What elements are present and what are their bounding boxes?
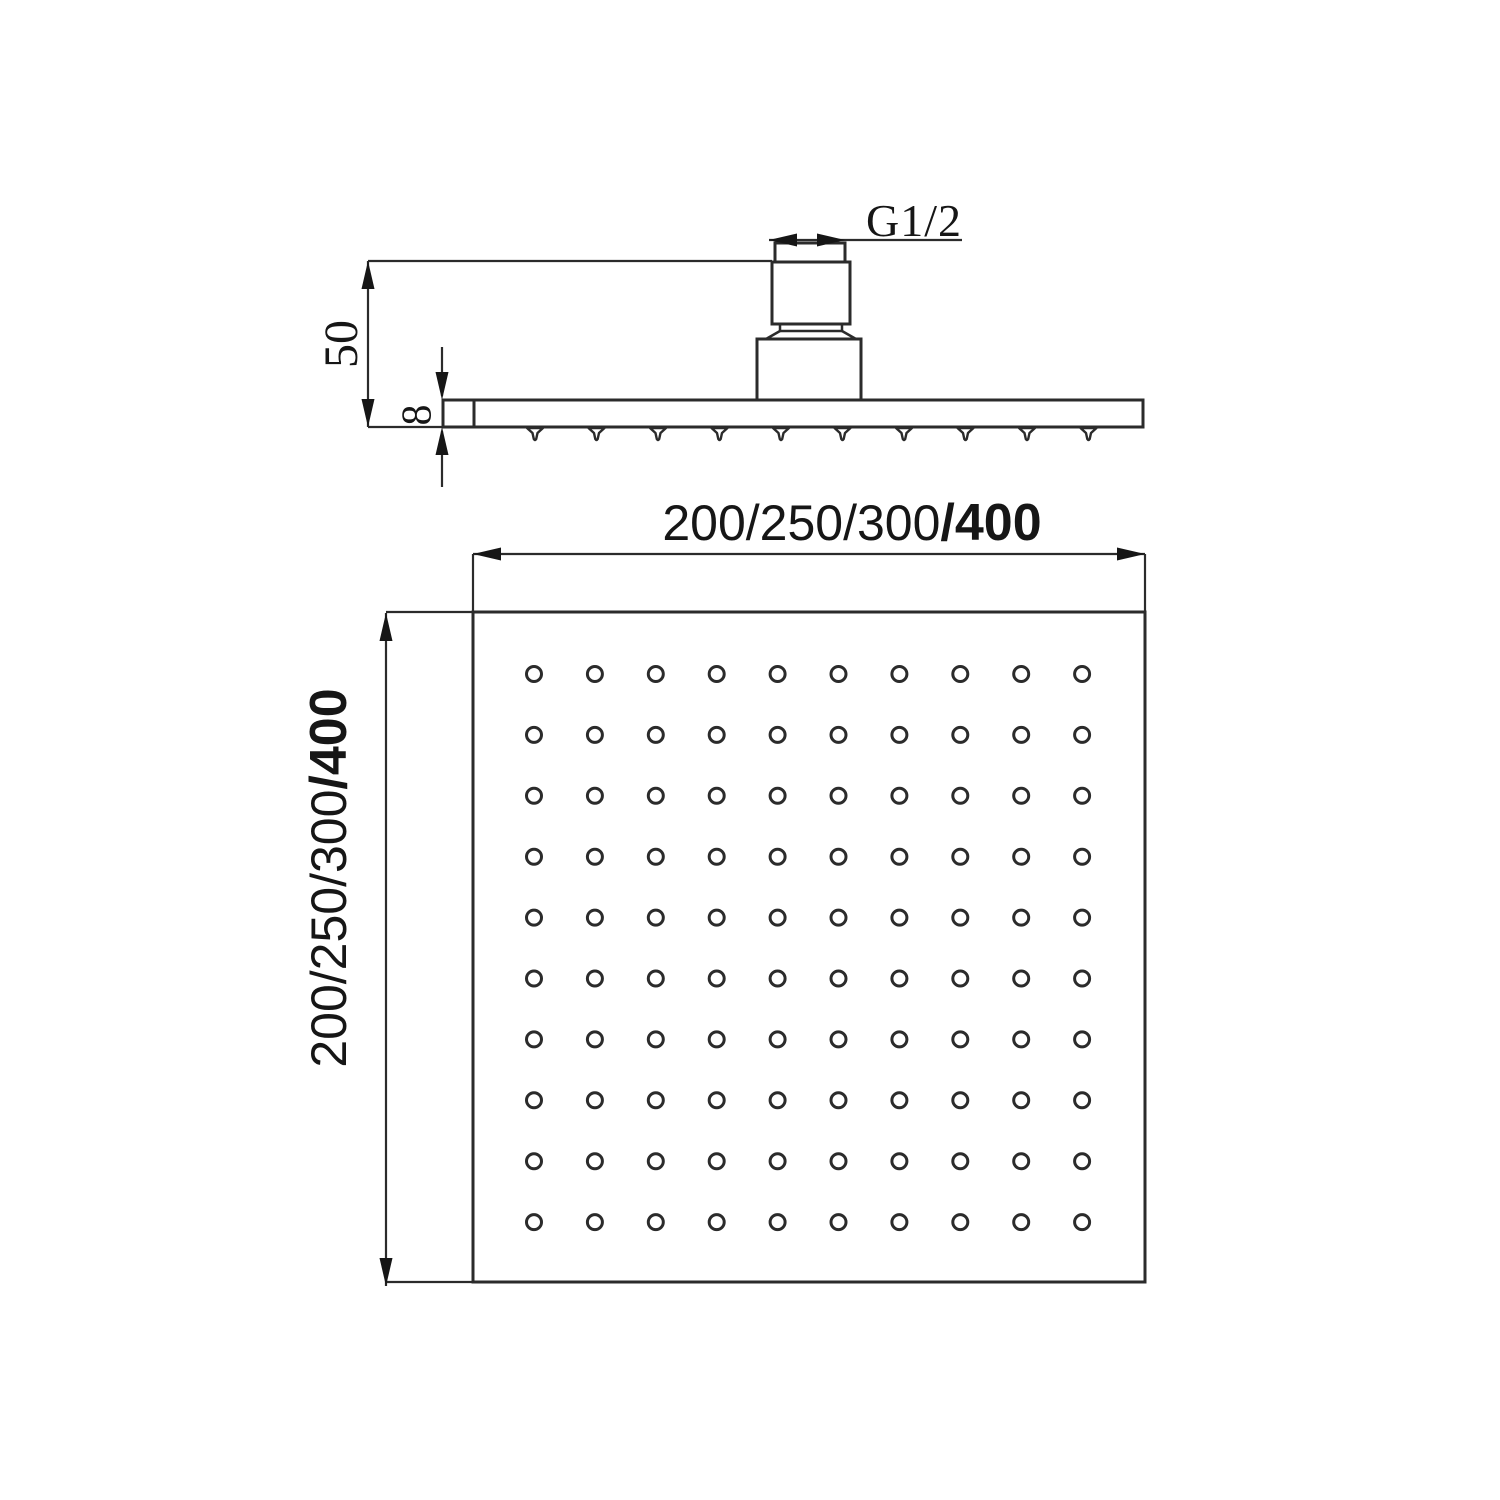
thickness-dim-arrow-up <box>436 427 449 455</box>
spray-hole <box>587 1093 602 1108</box>
nozzle-row <box>527 428 1097 440</box>
nozzle-tip <box>835 428 851 440</box>
plate-side-outline <box>443 400 1143 427</box>
spray-hole <box>953 1032 968 1047</box>
spray-hole <box>1014 849 1029 864</box>
plan-view: 200/250/300/400 200/250/300/400 <box>300 494 1145 1286</box>
spray-hole <box>953 1215 968 1230</box>
spray-hole <box>953 667 968 682</box>
spray-hole <box>648 1093 663 1108</box>
height-dim-arrow-up <box>362 261 375 289</box>
thread-dimension: G1/2 <box>769 195 962 247</box>
nozzle-tip <box>773 428 789 440</box>
spray-hole <box>587 1215 602 1230</box>
nozzle-tip <box>896 428 912 440</box>
connector-collar <box>766 324 856 339</box>
spray-hole <box>892 1154 907 1169</box>
nozzle-tip <box>1081 428 1097 440</box>
spray-hole <box>953 910 968 925</box>
plan-height-dim-arrow-up <box>380 613 393 641</box>
spray-hole <box>709 910 724 925</box>
spray-hole <box>892 971 907 986</box>
spray-hole <box>648 1215 663 1230</box>
plan-height-dim-label-normal: 200/250/300 <box>301 790 357 1068</box>
spray-hole <box>770 1215 785 1230</box>
spray-hole <box>709 849 724 864</box>
spray-hole <box>527 727 542 742</box>
nozzle-tip <box>589 428 605 440</box>
spray-hole <box>953 1093 968 1108</box>
spray-hole <box>770 788 785 803</box>
spray-hole <box>1014 971 1029 986</box>
plan-height-dim-label-bold: /400 <box>300 688 358 789</box>
nozzle-tip <box>958 428 974 440</box>
spray-hole <box>709 788 724 803</box>
spray-hole <box>953 727 968 742</box>
spray-hole <box>587 849 602 864</box>
spray-hole <box>1014 1215 1029 1230</box>
spray-hole <box>953 849 968 864</box>
nozzle-tip <box>527 428 543 440</box>
spray-hole <box>831 1032 846 1047</box>
width-dim-label-bold: /400 <box>940 494 1041 552</box>
spray-hole <box>831 788 846 803</box>
spray-hole <box>892 1032 907 1047</box>
spray-hole <box>953 971 968 986</box>
spray-hole <box>709 1154 724 1169</box>
spray-hole <box>1075 849 1090 864</box>
width-dim-label-normal: 200/250/300 <box>662 495 940 551</box>
spray-hole <box>831 1154 846 1169</box>
width-dim-arrow-right <box>1117 548 1145 561</box>
spray-hole <box>709 667 724 682</box>
spray-hole <box>831 849 846 864</box>
spray-hole <box>1014 667 1029 682</box>
spray-hole <box>1075 1215 1090 1230</box>
spray-hole <box>892 788 907 803</box>
spray-hole <box>892 727 907 742</box>
spray-hole <box>709 1215 724 1230</box>
spray-hole <box>648 1032 663 1047</box>
spray-hole <box>953 788 968 803</box>
spray-hole <box>527 849 542 864</box>
spray-hole <box>770 667 785 682</box>
spray-hole <box>587 910 602 925</box>
spray-hole <box>892 1215 907 1230</box>
thread-size-label: G1/2 <box>866 195 962 246</box>
plan-height-dimension: 200/250/300/400 <box>300 612 473 1286</box>
spray-hole <box>770 849 785 864</box>
spray-hole <box>953 1154 968 1169</box>
spray-hole <box>892 849 907 864</box>
spray-hole <box>709 1093 724 1108</box>
nozzle-tip <box>712 428 728 440</box>
spray-hole <box>831 1093 846 1108</box>
connector-base <box>757 339 861 400</box>
spray-hole <box>587 667 602 682</box>
spray-hole <box>770 1032 785 1047</box>
spray-hole <box>587 788 602 803</box>
spray-hole <box>1014 727 1029 742</box>
spray-hole <box>648 667 663 682</box>
spray-hole <box>648 1154 663 1169</box>
spray-hole <box>1014 1032 1029 1047</box>
spray-hole <box>1014 788 1029 803</box>
spray-hole <box>1075 1093 1090 1108</box>
thickness-dim-arrow-down <box>436 372 449 400</box>
spray-hole <box>770 1154 785 1169</box>
width-dim-label: 200/250/300/400 <box>662 494 1041 552</box>
spray-hole <box>1075 727 1090 742</box>
spray-hole <box>527 788 542 803</box>
plan-height-dim-label: 200/250/300/400 <box>300 688 358 1067</box>
spray-hole <box>527 1093 542 1108</box>
spray-hole <box>770 971 785 986</box>
spray-hole <box>831 910 846 925</box>
spray-hole <box>648 788 663 803</box>
width-dim-arrow-left <box>473 548 501 561</box>
spray-hole <box>1075 667 1090 682</box>
spray-hole <box>770 910 785 925</box>
spray-hole <box>1014 1093 1029 1108</box>
spray-hole <box>831 971 846 986</box>
spray-hole <box>587 727 602 742</box>
spray-hole <box>709 971 724 986</box>
technical-drawing-canvas: G1/2 50 8 <box>0 0 1500 1500</box>
spray-hole <box>648 971 663 986</box>
spray-hole <box>1075 1154 1090 1169</box>
connector-body <box>772 262 850 324</box>
connector-thread <box>775 243 845 262</box>
spray-hole <box>1075 788 1090 803</box>
width-dimension: 200/250/300/400 <box>473 494 1145 612</box>
spray-hole <box>527 971 542 986</box>
spray-hole <box>527 1154 542 1169</box>
spray-hole <box>587 971 602 986</box>
spray-hole <box>648 910 663 925</box>
spray-hole <box>831 727 846 742</box>
spray-hole <box>587 1032 602 1047</box>
spray-hole <box>831 1215 846 1230</box>
spray-hole <box>892 910 907 925</box>
spray-hole <box>1014 1154 1029 1169</box>
spray-hole <box>892 1093 907 1108</box>
spray-hole <box>1075 971 1090 986</box>
spray-hole <box>527 667 542 682</box>
thickness-dimension-8: 8 <box>395 347 449 487</box>
spray-hole <box>527 1032 542 1047</box>
spray-hole <box>770 1093 785 1108</box>
height-dim-arrow-down <box>362 399 375 427</box>
spray-hole <box>527 1215 542 1230</box>
side-view: G1/2 50 8 <box>315 195 1143 487</box>
spray-hole <box>709 727 724 742</box>
nozzle-tip <box>650 428 666 440</box>
spray-hole <box>892 667 907 682</box>
shower-head-drawing: G1/2 50 8 <box>0 0 1500 1500</box>
spray-hole <box>1014 910 1029 925</box>
spray-hole <box>527 910 542 925</box>
spray-hole <box>709 1032 724 1047</box>
spray-hole <box>648 727 663 742</box>
thickness-dim-label: 8 <box>395 405 441 426</box>
spray-hole <box>587 1154 602 1169</box>
nozzle-tip <box>1019 428 1035 440</box>
height-dim-label: 50 <box>315 320 368 368</box>
spray-hole <box>1075 910 1090 925</box>
spray-hole <box>831 667 846 682</box>
spray-hole <box>648 849 663 864</box>
plate-face-outline <box>473 612 1145 1282</box>
spray-hole <box>1075 1032 1090 1047</box>
spray-hole <box>770 727 785 742</box>
